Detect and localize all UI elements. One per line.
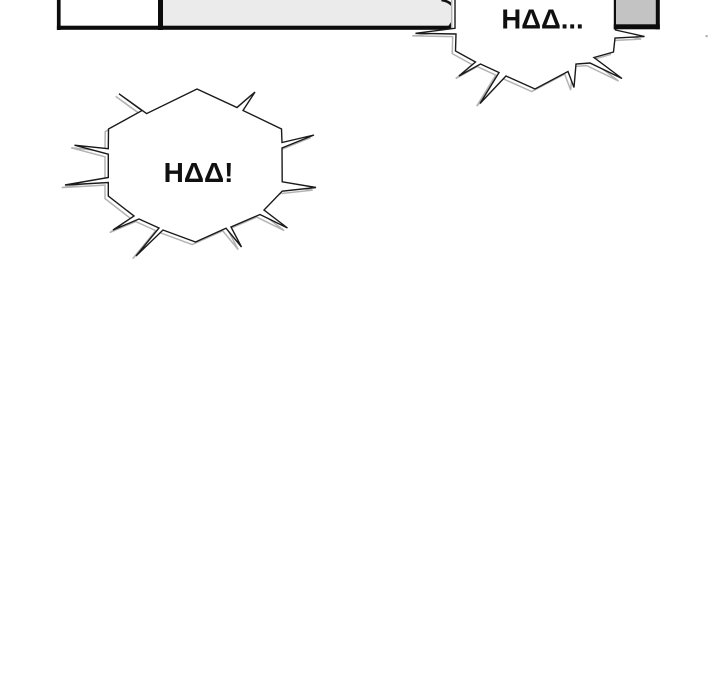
svg-text:HΔΔ...: HΔΔ... [501,3,583,34]
svg-text:HΔΔ!: HΔΔ! [164,157,234,188]
